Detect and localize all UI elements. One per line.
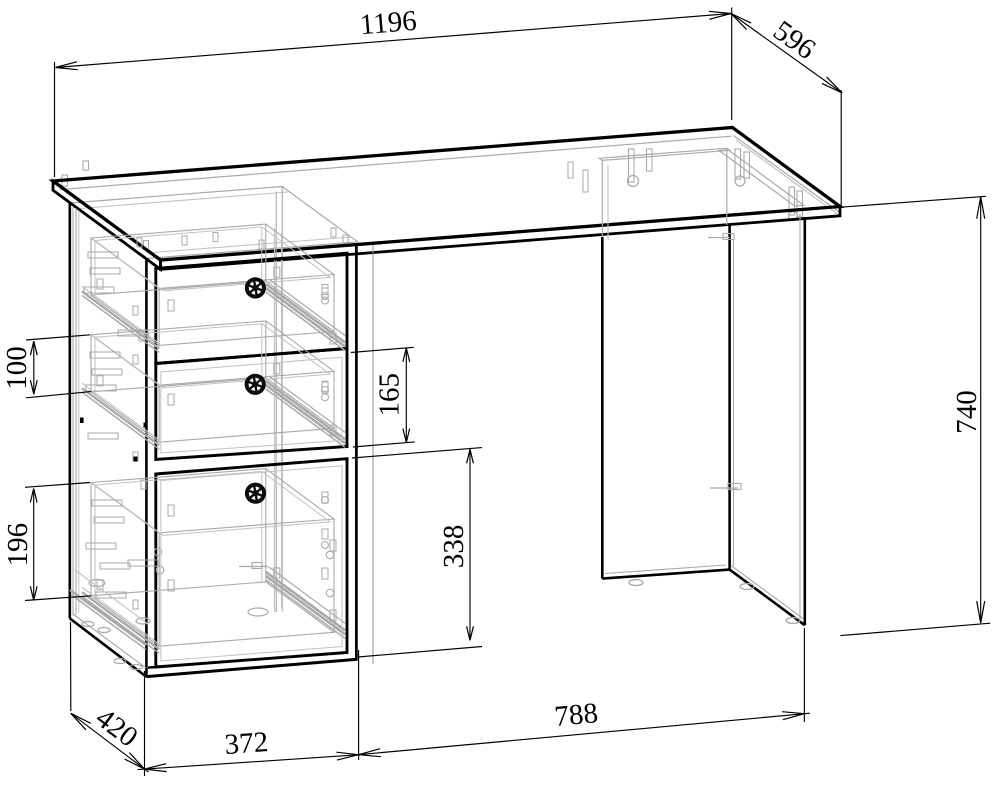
svg-text:1196: 1196: [359, 5, 418, 41]
svg-text:165: 165: [373, 373, 405, 417]
svg-text:338: 338: [438, 525, 470, 569]
svg-text:100: 100: [1, 346, 33, 390]
svg-text:740: 740: [951, 390, 983, 434]
svg-text:196: 196: [2, 523, 34, 567]
svg-text:788: 788: [553, 697, 599, 733]
svg-text:372: 372: [224, 726, 270, 761]
